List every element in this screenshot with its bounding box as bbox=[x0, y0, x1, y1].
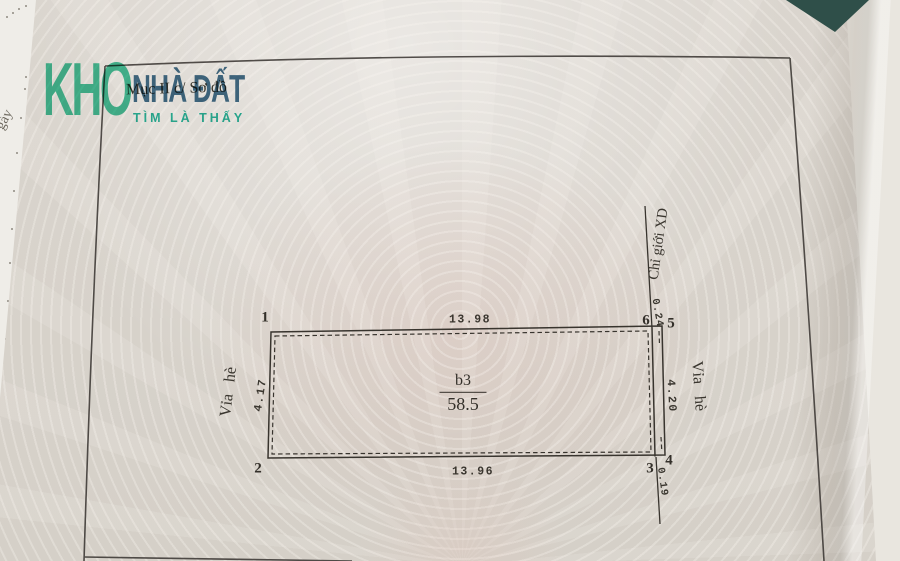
nha-dat-logo-text: NHÀ ĐẤT bbox=[132, 68, 244, 109]
tagline-text: TÌM LÀ THẤY bbox=[133, 111, 245, 125]
kho-logo-text: KHO bbox=[43, 52, 131, 127]
photo-of-land-certificate-page: gày 1 2 3 4 5 6 13 bbox=[0, 0, 900, 561]
kho-nha-dat-watermark: KHO NHÀ ĐẤT TÌM LÀ THẤY bbox=[0, 0, 900, 561]
